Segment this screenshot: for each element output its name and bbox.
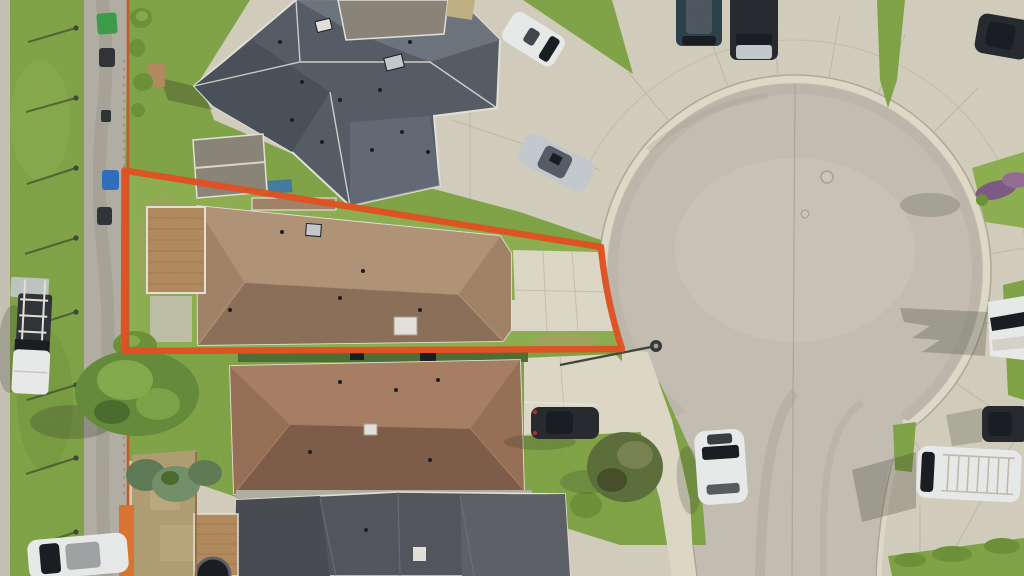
photo-grain-overlay [0, 0, 1024, 576]
aerial-photo [0, 0, 1024, 576]
aerial-photo-canvas [0, 0, 1024, 576]
